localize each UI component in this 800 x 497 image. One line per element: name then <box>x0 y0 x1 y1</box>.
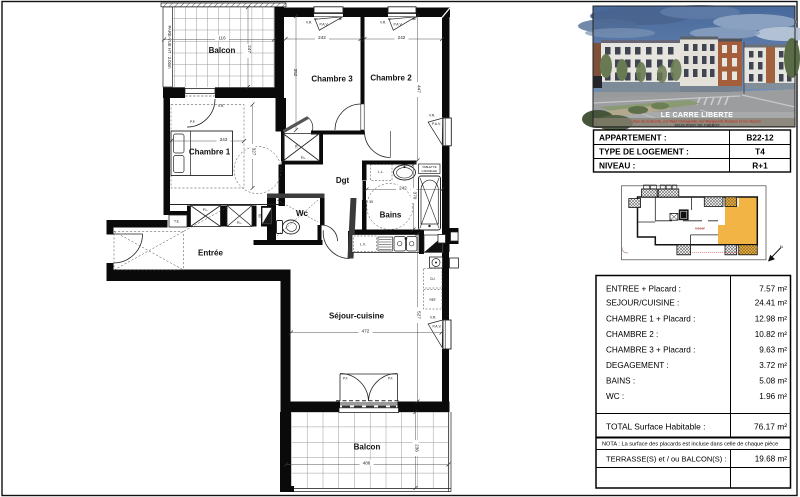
svg-text:N: N <box>780 244 783 249</box>
svg-text:CHAMBRE 1 + Placard :: CHAMBRE 1 + Placard : <box>606 315 695 324</box>
svg-text:P.L.: P.L. <box>203 208 209 212</box>
svg-text:352: 352 <box>293 69 298 77</box>
svg-text:B22-12: B22-12 <box>746 133 774 143</box>
svg-text:V.R.: V.R. <box>429 114 435 118</box>
svg-text:TYPE DE LOGEMENT :: TYPE DE LOGEMENT : <box>599 147 689 157</box>
svg-text:T.E.: T.E. <box>174 220 180 224</box>
svg-text:P.L.: P.L. <box>237 221 243 225</box>
svg-text:Séjour-cuisine: Séjour-cuisine <box>329 312 385 321</box>
svg-text:3.72 m²: 3.72 m² <box>759 361 787 370</box>
svg-text:TERRASSE(S) et / ou BALCON(S): TERRASSE(S) et / ou BALCON(S) : <box>606 455 726 464</box>
svg-text:247: 247 <box>247 45 252 53</box>
svg-text:CHAMBRE 2 :: CHAMBRE 2 : <box>606 330 658 339</box>
svg-text:NIVEAU :: NIVEAU : <box>599 161 635 171</box>
svg-text:Chambre 1: Chambre 1 <box>189 148 231 157</box>
svg-text:327: 327 <box>252 148 257 156</box>
svg-text:P.F.: P.F. <box>190 120 195 124</box>
svg-text:527: 527 <box>417 311 422 319</box>
svg-text:76.17 m²: 76.17 m² <box>754 422 787 432</box>
svg-text:242: 242 <box>318 35 326 40</box>
svg-text:P.F.: P.F. <box>343 377 348 381</box>
svg-text:7.57 m²: 7.57 m² <box>759 285 787 294</box>
svg-text:Entrée: Entrée <box>198 249 223 258</box>
svg-text:Wc: Wc <box>296 209 309 218</box>
svg-text:55: 55 <box>370 200 374 204</box>
svg-text:1.96 m²: 1.96 m² <box>759 392 787 401</box>
svg-text:19.68 m²: 19.68 m² <box>755 455 788 464</box>
svg-text:BAINS :: BAINS : <box>606 377 635 386</box>
svg-text:REF: REF <box>430 298 436 302</box>
svg-text:P.A.V.: P.A.V. <box>394 23 403 27</box>
svg-text:TOTAL Surface Habitable :: TOTAL Surface Habitable : <box>606 422 705 432</box>
svg-text:Chambre 2: Chambre 2 <box>370 74 412 83</box>
svg-text:5.08 m²: 5.08 m² <box>759 377 787 386</box>
svg-text:L.L.: L.L. <box>378 170 384 174</box>
svg-text:P.A.V.: P.A.V. <box>432 122 441 126</box>
svg-text:LE CARRE LIBERTE: LE CARRE LIBERTE <box>661 112 733 119</box>
svg-text:486: 486 <box>363 461 371 466</box>
svg-text:T4: T4 <box>755 147 765 157</box>
svg-text:242: 242 <box>398 35 406 40</box>
svg-text:472: 472 <box>362 329 370 334</box>
svg-text:Balcon: Balcon <box>354 443 381 452</box>
svg-text:12.98 m²: 12.98 m² <box>755 315 788 324</box>
svg-text:V.R.: V.R. <box>306 21 312 25</box>
svg-text:V.R.: V.R. <box>430 316 436 320</box>
svg-text:343: 343 <box>220 137 228 142</box>
svg-text:CARRELEE: CARRELEE <box>422 169 438 173</box>
svg-text:Balcon: Balcon <box>209 46 236 55</box>
svg-text:24.41 m²: 24.41 m² <box>755 299 788 308</box>
svg-text:SEJOUR/CUISINE :: SEJOUR/CUISINE : <box>606 299 679 308</box>
svg-text:L.V.: L.V. <box>360 243 366 247</box>
svg-text:P.A.V.: P.A.V. <box>320 23 329 27</box>
svg-text:236: 236 <box>415 444 420 452</box>
svg-text:NOTA : La surface des placards: NOTA : La surface des placards est inclu… <box>602 442 778 448</box>
svg-text:DEGAGEMENT :: DEGAGEMENT : <box>606 361 669 370</box>
svg-text:PARE-VUE HT : 2.00m: PARE-VUE HT : 2.00m <box>167 26 172 69</box>
svg-text:Bains: Bains <box>380 211 402 220</box>
svg-text:116: 116 <box>218 36 226 41</box>
svg-text:V.R.: V.R. <box>380 21 386 25</box>
svg-text:9.63 m²: 9.63 m² <box>759 346 787 355</box>
svg-text:Dgt: Dgt <box>336 176 350 185</box>
svg-text:P.F.: P.F. <box>388 377 393 381</box>
svg-text:R+1: R+1 <box>752 161 768 171</box>
svg-text:ENTREE + Placard :: ENTREE + Placard : <box>606 285 681 294</box>
svg-text:242: 242 <box>399 186 407 191</box>
svg-text:Chambre 3: Chambre 3 <box>311 75 353 84</box>
svg-text:60: 60 <box>294 145 298 149</box>
svg-text:370: 370 <box>413 192 418 200</box>
svg-text:P.A.V.: P.A.V. <box>433 325 442 329</box>
svg-text:CU.: CU. <box>430 277 436 281</box>
svg-text:Césür: Césür <box>695 226 706 230</box>
svg-text:APPARTEMENT :: APPARTEMENT : <box>599 133 667 143</box>
svg-text:447: 447 <box>417 85 422 93</box>
svg-text:60: 60 <box>258 214 262 218</box>
svg-text:10.82 m²: 10.82 m² <box>755 330 788 339</box>
svg-text:WC :: WC : <box>606 392 624 401</box>
svg-text:P.L.: P.L. <box>301 156 307 160</box>
svg-text:CHAMBRE 3 + Placard :: CHAMBRE 3 + Placard : <box>606 346 695 355</box>
